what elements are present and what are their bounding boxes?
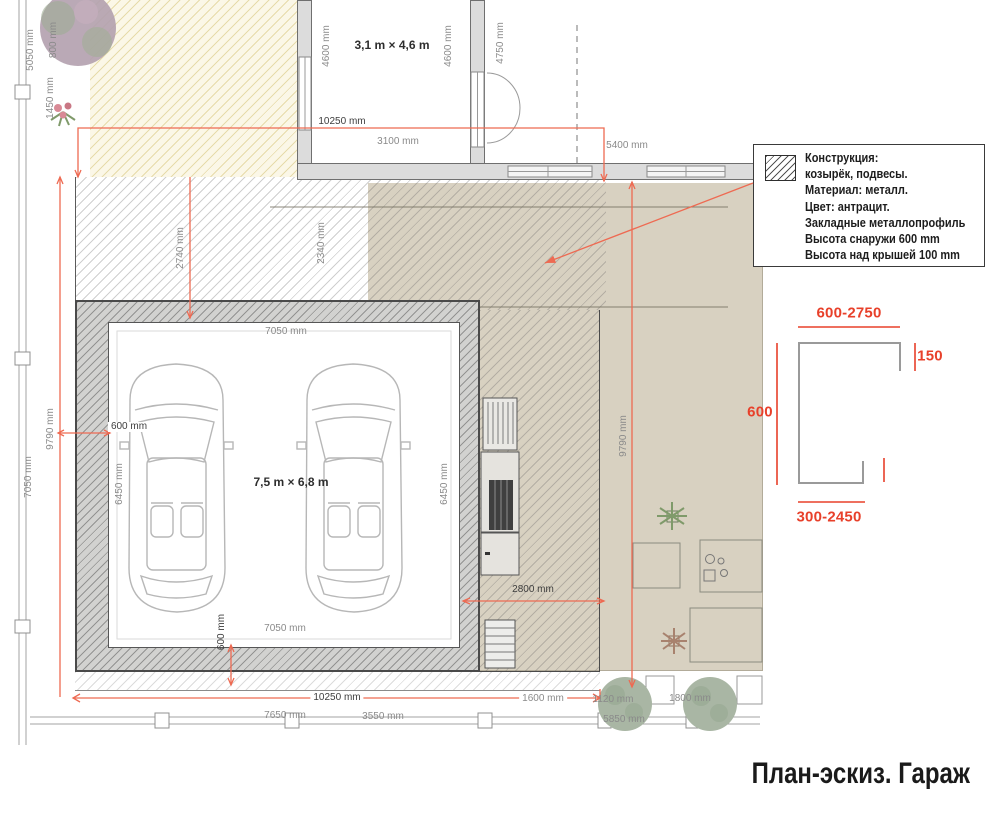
dim-label-1450: 1450 mm <box>46 77 56 119</box>
house-wall-middle <box>470 0 485 180</box>
dim-label-1800: 1800 mm <box>669 694 711 704</box>
dim-label-9790-right: 9790 mm <box>619 415 629 457</box>
garage-site-plan: Конструкция: козырёк, подвесы. Материал:… <box>0 0 990 814</box>
canopy-hatch-top-band <box>75 177 606 310</box>
legend-line: Материал: металл. <box>805 182 965 198</box>
detail-dim-right: 150 <box>917 349 943 364</box>
dim-label-9790-left: 9790 mm <box>46 408 56 450</box>
canopy-profile-detail-shape <box>799 343 900 483</box>
dim-label-2740: 2740 mm <box>176 227 186 269</box>
fence-left <box>15 0 30 745</box>
sheet-title: План-эскиз. Гараж <box>752 757 970 791</box>
dim-label-7050-garage-top: 7050 mm <box>265 327 307 337</box>
dim-label-7050-garage-bottom: 7050 mm <box>264 624 306 634</box>
door-swing-arcs <box>487 73 520 143</box>
dim-label-800: 800 mm <box>49 22 59 58</box>
dim-label-10250-top: 10250 mm <box>315 117 368 127</box>
detail-dim-bottom: 300-2450 <box>797 510 862 525</box>
hatch-swatch-icon <box>765 155 796 181</box>
dim-label-2340: 2340 mm <box>317 222 327 264</box>
yard-lawn-hatched-area <box>90 0 298 177</box>
legend-line: Конструкция: <box>805 150 965 166</box>
dim-label-2800: 2800 mm <box>512 585 554 595</box>
dim-label-4750: 4750 mm <box>496 22 506 64</box>
dim-label-4600-a: 4600 mm <box>322 25 332 67</box>
dim-label-7650: 7650 mm <box>264 711 306 721</box>
dim-label-3550: 3550 mm <box>362 712 404 722</box>
garage-size-label: 7,5 m × 6,8 m <box>253 476 328 488</box>
dim-label-6450-left: 6450 mm <box>115 463 125 505</box>
canopy-hatch-right-band <box>480 310 600 672</box>
canopy-hatch-bottom-apron <box>75 672 600 691</box>
legend-line: Высота над крышей 100 mm <box>805 247 965 263</box>
dim-label-1120: 1120 mm <box>593 695 634 705</box>
legend-line: Цвет: антрацит. <box>805 199 965 215</box>
dim-label-7050-left: 7050 mm <box>24 456 34 498</box>
legend-box: Конструкция: козырёк, подвесы. Материал:… <box>753 144 985 267</box>
dim-label-10250-bottom: 10250 mm <box>310 693 363 703</box>
dim-label-4600-b: 4600 mm <box>444 25 454 67</box>
legend-line: Высота снаружи 600 mm <box>805 231 965 247</box>
dim-label-600-garage-left: 600 mm <box>108 422 150 432</box>
dim-label-3100: 3100 mm <box>377 137 419 147</box>
legend-line: Закладные металлопрофиль <box>805 215 965 231</box>
detail-dim-top: 600-2750 <box>817 306 882 321</box>
dim-label-6450-right: 6450 mm <box>440 463 450 505</box>
house-wall-bottom <box>297 163 762 180</box>
canopy-profile-detail-dims <box>777 327 915 502</box>
house-wall-left <box>297 0 312 180</box>
dim-label-600-garage-bottom: 600 mm <box>217 614 227 650</box>
legend-line: козырёк, подвесы. <box>805 166 965 182</box>
dim-label-5050: 5050 mm <box>26 29 36 71</box>
dim-label-5400: 5400 mm <box>606 141 648 151</box>
detail-dim-left: 600 <box>747 405 773 420</box>
dim-label-1600: 1600 mm <box>519 694 567 704</box>
tree-icon <box>683 677 737 731</box>
room-size-label: 3,1 m × 4,6 m <box>354 39 429 51</box>
dim-label-5850: 5850 mm <box>603 715 645 725</box>
